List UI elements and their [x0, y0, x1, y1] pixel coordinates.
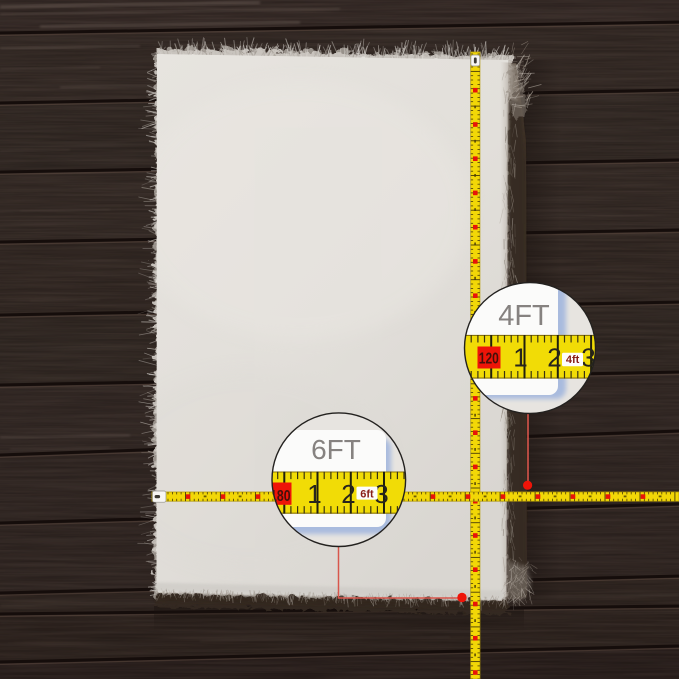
- svg-text:6ft: 6ft: [360, 488, 374, 500]
- svg-text:2: 2: [547, 343, 561, 373]
- svg-text:2: 2: [341, 479, 355, 509]
- svg-text:4ft: 4ft: [566, 354, 580, 366]
- svg-text:6FT: 6FT: [311, 434, 361, 465]
- svg-text:120: 120: [479, 350, 499, 367]
- svg-text:4FT: 4FT: [498, 300, 550, 332]
- svg-text:1: 1: [513, 343, 527, 373]
- svg-text:1: 1: [307, 479, 321, 509]
